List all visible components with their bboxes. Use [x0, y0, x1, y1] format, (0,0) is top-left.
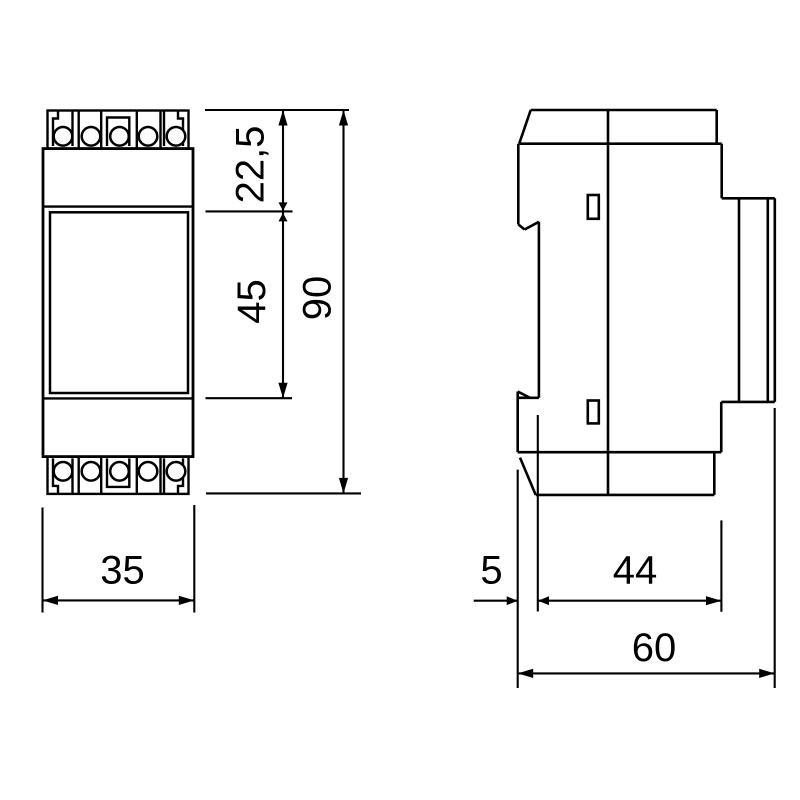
svg-text:60: 60 [632, 626, 677, 670]
svg-text:44: 44 [613, 549, 658, 593]
svg-text:45: 45 [230, 279, 274, 324]
svg-text:22,5: 22,5 [229, 126, 273, 204]
svg-text:90: 90 [296, 276, 340, 321]
svg-text:5: 5 [480, 549, 502, 593]
svg-text:35: 35 [100, 549, 145, 593]
